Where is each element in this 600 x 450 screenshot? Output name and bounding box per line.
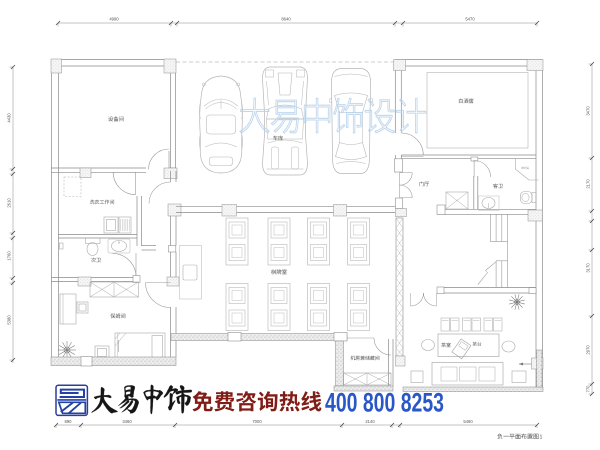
svg-text:2170: 2170: [586, 179, 591, 189]
svg-text:2970: 2970: [586, 345, 591, 355]
svg-text:400 800 8253: 400 800 8253: [325, 388, 444, 418]
svg-text:4990: 4990: [109, 17, 119, 22]
svg-text:890: 890: [65, 419, 73, 424]
svg-text:5470: 5470: [465, 17, 475, 22]
svg-text:3460: 3460: [122, 419, 132, 424]
svg-text:4430: 4430: [7, 113, 12, 123]
svg-text:2140: 2140: [365, 419, 375, 424]
svg-text:1: 1: [540, 435, 543, 441]
svg-text:3170: 3170: [586, 263, 591, 273]
svg-text:8640: 8640: [281, 17, 291, 22]
svg-text:7000: 7000: [252, 419, 262, 424]
svg-text:1760: 1760: [7, 251, 12, 261]
svg-text:5460: 5460: [463, 419, 473, 424]
svg-text:5380: 5380: [7, 315, 12, 325]
svg-text:3470: 3470: [586, 106, 591, 116]
svg-text:2610: 2610: [7, 198, 12, 208]
svg-text:770: 770: [586, 385, 591, 393]
